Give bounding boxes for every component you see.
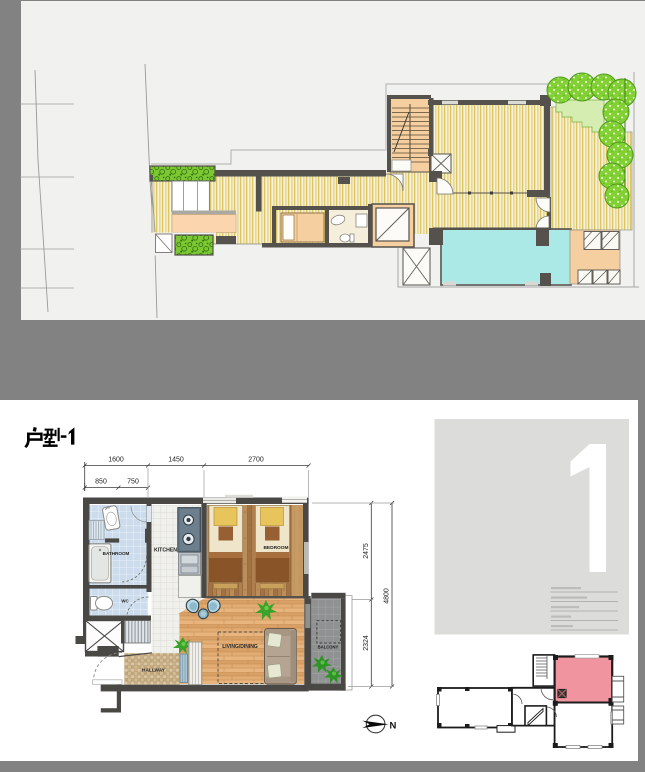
svg-text:BEDROOM: BEDROOM bbox=[263, 545, 288, 551]
svg-text:2324: 2324 bbox=[363, 635, 370, 651]
svg-text:N: N bbox=[390, 720, 397, 731]
svg-text:LIVING/DINING: LIVING/DINING bbox=[222, 644, 258, 650]
svg-text:1600: 1600 bbox=[108, 457, 124, 464]
svg-text:850: 850 bbox=[95, 479, 107, 486]
svg-text:4800: 4800 bbox=[384, 588, 391, 604]
svg-text:HALLWAY: HALLWAY bbox=[142, 668, 166, 674]
svg-text:750: 750 bbox=[127, 479, 139, 486]
svg-text:2475: 2475 bbox=[363, 543, 370, 559]
svg-text:KITCHEN: KITCHEN bbox=[154, 548, 177, 554]
svg-text:1450: 1450 bbox=[168, 457, 184, 464]
svg-text:BATHROOM: BATHROOM bbox=[103, 551, 130, 556]
svg-text:BALCONY: BALCONY bbox=[318, 645, 339, 650]
svg-text:WC: WC bbox=[121, 599, 129, 604]
svg-text:2700: 2700 bbox=[248, 457, 264, 464]
